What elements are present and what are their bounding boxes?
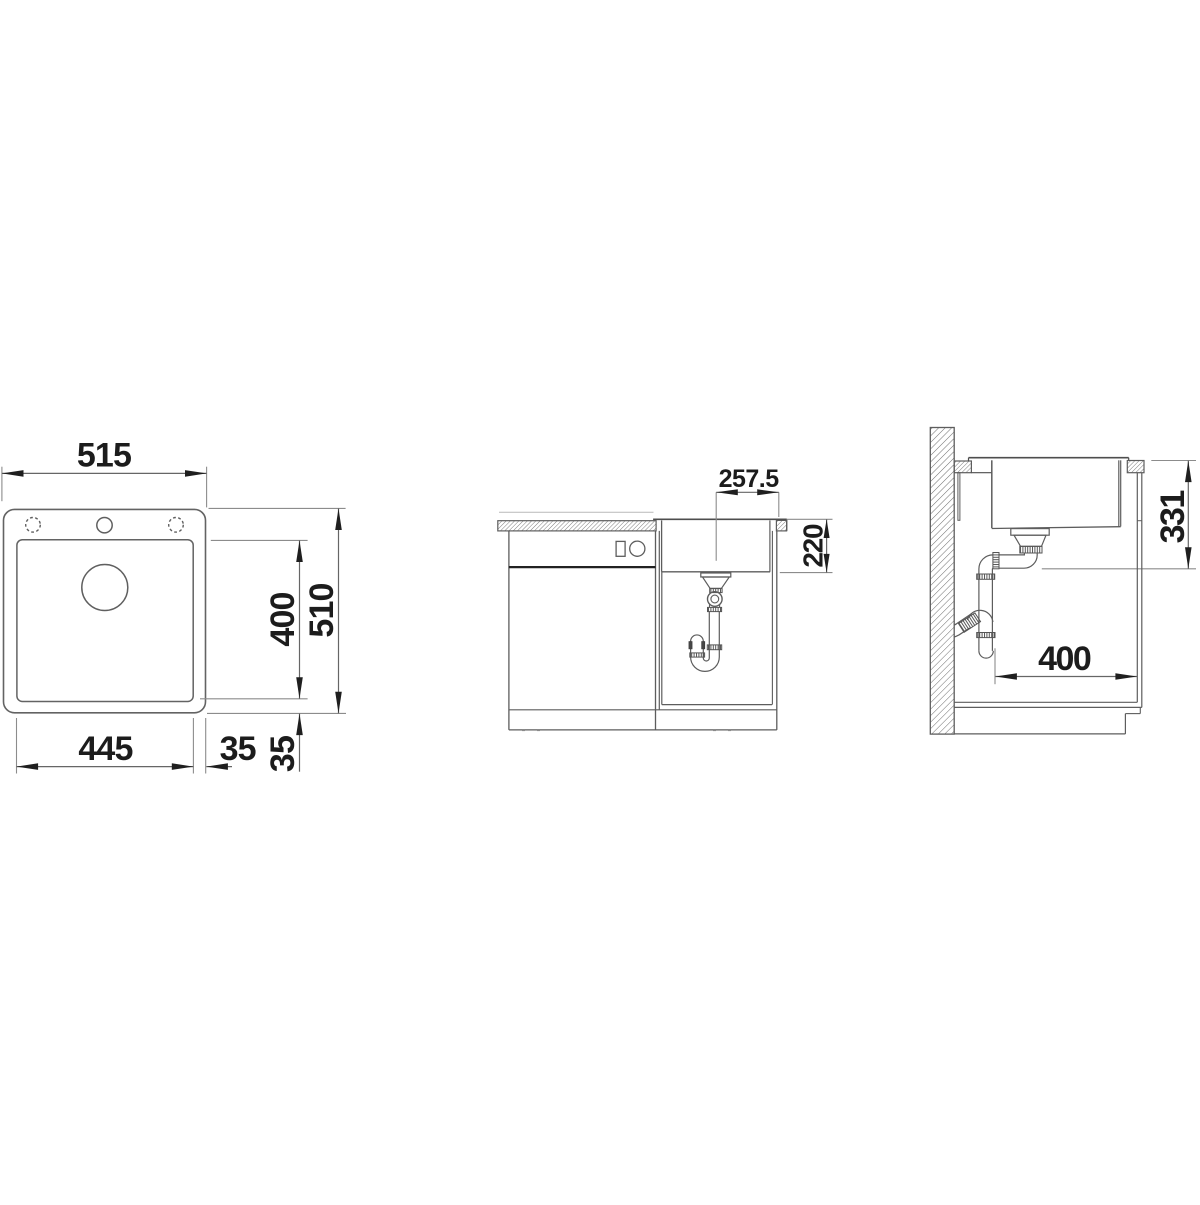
svg-text:515: 515 [77,437,131,475]
svg-text:400: 400 [264,592,302,646]
svg-text:220: 220 [798,524,829,568]
svg-text:400: 400 [1038,640,1091,678]
svg-text:257.5: 257.5 [719,465,780,493]
svg-text:510: 510 [303,583,341,637]
svg-text:35: 35 [220,730,256,768]
svg-text:445: 445 [78,730,132,768]
svg-text:331: 331 [1154,491,1192,544]
svg-text:35: 35 [264,736,302,772]
